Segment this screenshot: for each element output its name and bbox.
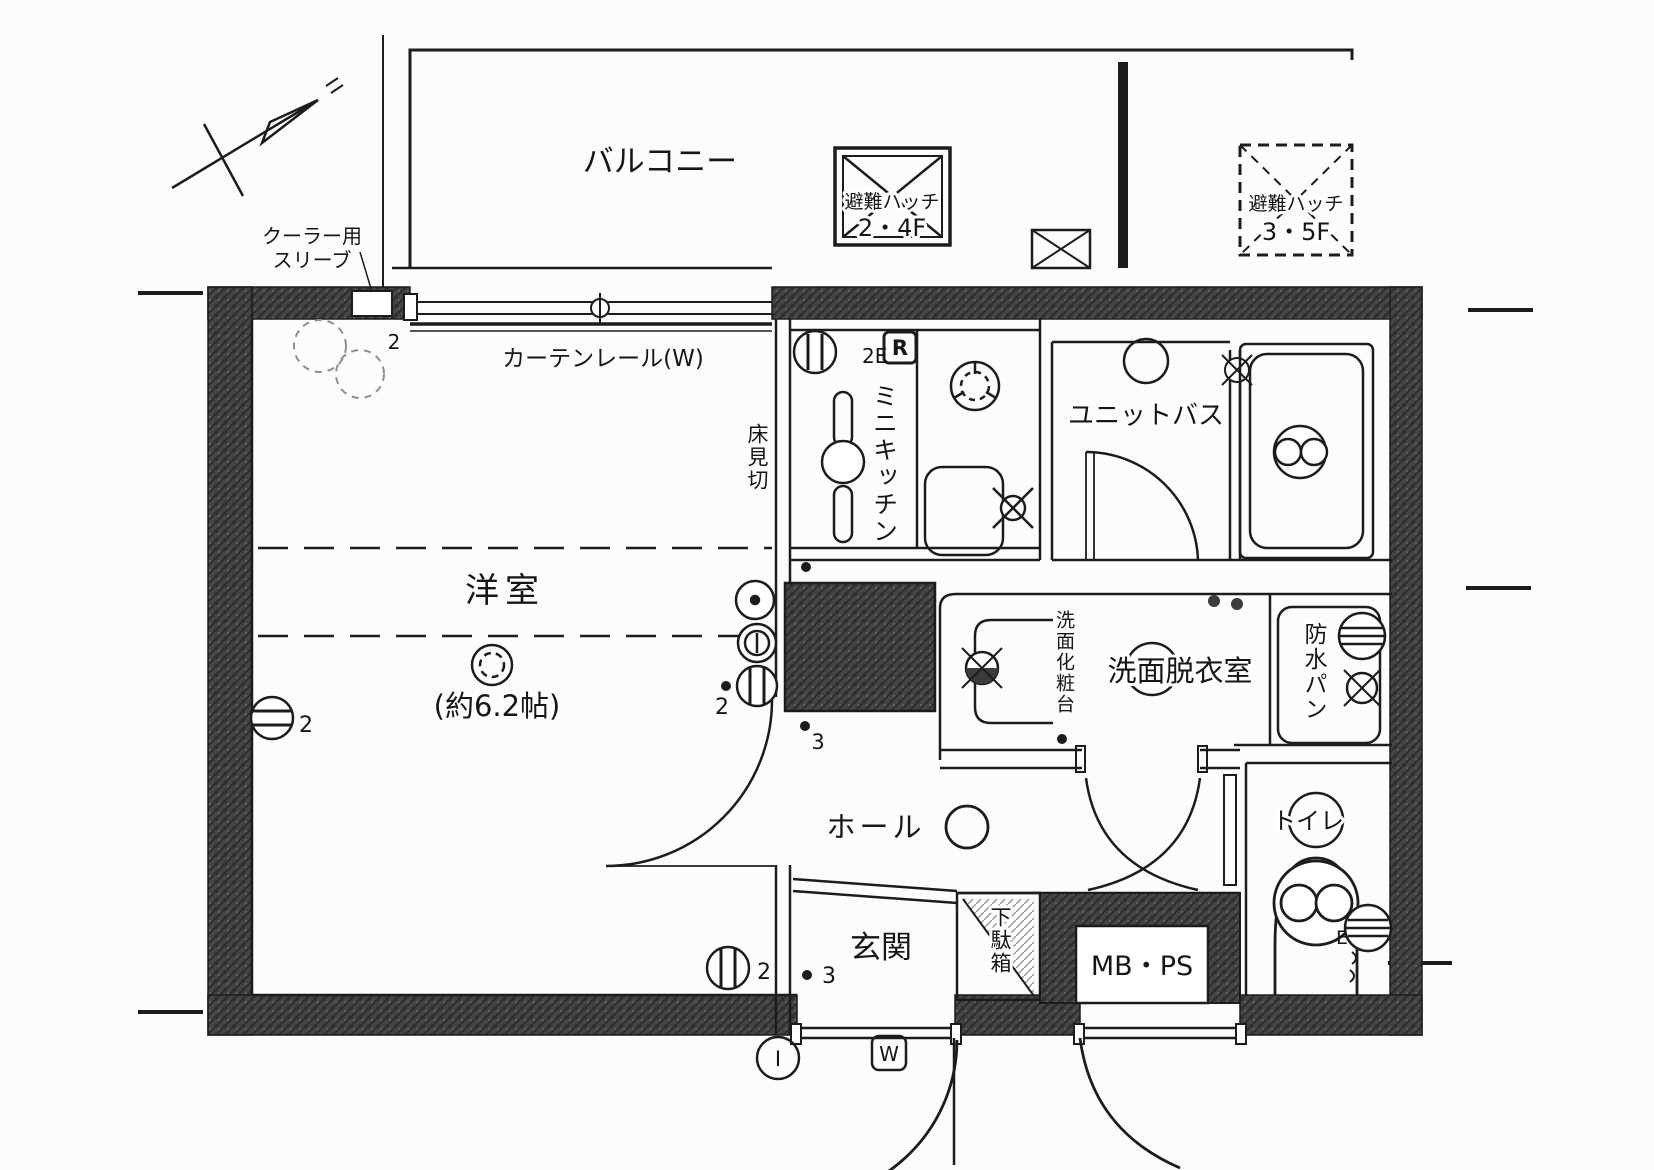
i-mark: I <box>775 1047 781 1071</box>
cooler-sleeve-label-1: クーラー用 <box>262 224 362 248</box>
hatch24-floors-label: 2・4F <box>858 214 926 242</box>
mbps-label: MB・PS <box>1091 951 1193 982</box>
bathtub-icon <box>1240 344 1373 558</box>
floor-plan-drawing: バルコニー 避難ハッチ 2・4F 避難ハッチ 3・5F クーラー用 スリーブ カ… <box>0 0 1654 1170</box>
cooler-sleeve-label-2: スリーブ <box>273 248 352 272</box>
unit-bath <box>1052 339 1392 560</box>
faint-fixture-circles <box>294 320 384 398</box>
entrance-door-arc <box>797 1040 957 1170</box>
kitchen-sink-icon <box>925 467 1033 555</box>
outlet-count-column: 2 <box>715 695 729 720</box>
curtain-rail-label: カーテンレール(W) <box>502 346 704 372</box>
outlet-count-bottom: 2 <box>757 960 771 985</box>
kitchen-outlet-mark: 2E <box>862 344 887 368</box>
hatch35-floors-label: 3・5F <box>1262 218 1330 246</box>
hall-label: ホール <box>826 810 925 844</box>
balcony-divider-wall <box>1118 62 1128 268</box>
fixture-symbol-column <box>721 581 777 706</box>
vanity-sink-icon <box>962 620 1053 723</box>
bath-faucet-icon <box>1222 355 1252 385</box>
pan-faucet-icon <box>1344 670 1380 706</box>
ceiling-light-icon <box>472 645 512 685</box>
floor-outlet-icon <box>707 947 749 989</box>
switch-count-hall: 3 <box>811 730 824 754</box>
washer-pan-icon <box>1278 607 1385 743</box>
toilet-label: トイレ <box>1272 807 1344 835</box>
mbps-door-arc2 <box>1080 1038 1180 1168</box>
floor-edge-label: 床見切 <box>745 423 769 492</box>
entrance-step-line <box>793 879 957 903</box>
room-door-swing-arc <box>606 700 772 866</box>
toilet-outlet-icon <box>1345 905 1391 951</box>
tub-drain-icon <box>1274 426 1327 478</box>
mbps-threshold <box>1074 1024 1246 1044</box>
western-room <box>251 319 797 1035</box>
cooler-sleeve-hole <box>352 291 392 316</box>
kitchen-outlet-icon <box>794 331 836 373</box>
pan-outlet-icon <box>1339 613 1385 659</box>
balcony-outline <box>383 35 1352 290</box>
hatch24-name-label: 避難ハッチ <box>844 191 939 213</box>
wall-outlet-icon <box>251 697 293 739</box>
switch-count-entrance: 3 <box>822 964 836 989</box>
western-room-label: 洋室 <box>465 571 545 611</box>
bath-door-swing <box>1086 452 1198 560</box>
single-lever-faucet-icon <box>822 392 864 542</box>
sliding-window <box>404 293 772 331</box>
floor-plan-scan: バルコニー 避難ハッチ 2・4F 避難ハッチ 3・5F クーラー用 スリーブ カ… <box>0 0 1654 1170</box>
outlet-count-left: 2 <box>299 713 313 738</box>
balcony-label: バルコニー <box>583 144 737 180</box>
bath-ceiling-light-icon <box>1124 339 1168 383</box>
entrance-threshold <box>791 1024 961 1044</box>
mini-kitchen <box>790 319 1052 560</box>
toilet-room <box>1224 745 1392 995</box>
hatch35-name-label: 避難ハッチ <box>1248 193 1343 215</box>
western-room-area-label: (約6.2帖) <box>434 689 561 723</box>
vanity-label: 洗面化粧台 <box>1053 610 1075 715</box>
washer-pan-label: 防水パン <box>1300 622 1328 722</box>
toilet-door-leaf <box>1224 775 1236 885</box>
hall-ceiling-light-icon <box>946 806 988 848</box>
stove-burner-icon <box>951 362 999 410</box>
duct-shaft <box>785 562 935 731</box>
fridge-mark: R <box>892 336 908 360</box>
balcony-drain-box <box>1032 230 1090 268</box>
shoebox-label: 下駄箱 <box>988 906 1012 975</box>
toilet-outlet-mark: E <box>1336 927 1348 949</box>
mini-kitchen-label: ミニキッチン <box>870 383 899 545</box>
w-mark: W <box>879 1042 899 1066</box>
north-arrow <box>172 78 343 196</box>
cooler-sleeve-leader-line <box>360 252 372 292</box>
entrance-label: 玄関 <box>850 930 912 966</box>
outlet-count-faint: 2 <box>388 330 401 354</box>
washroom-label: 洗面脱衣室 <box>1107 654 1252 688</box>
hall <box>946 778 1200 890</box>
unit-bath-label: ユニットバス <box>1068 401 1224 431</box>
